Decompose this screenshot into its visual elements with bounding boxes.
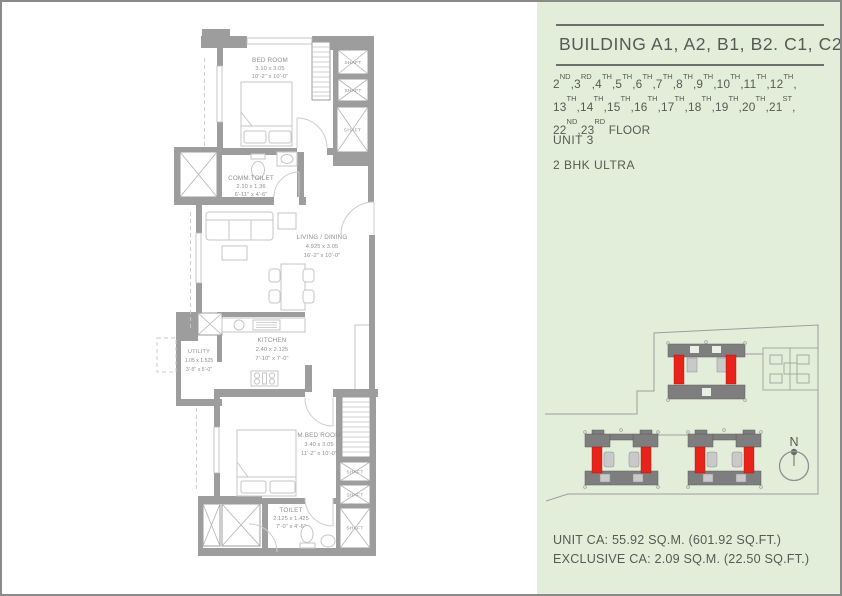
toilet-imperial: 7'-0" x 4'-6" [276, 524, 306, 530]
stove [251, 371, 278, 386]
building-outline [763, 348, 818, 390]
living-metric: 4.925 x 3.05 [306, 244, 339, 250]
building-title: BUILDING A1, A2, B1, B2. C1, C2 [559, 34, 821, 55]
unit-number: UNIT 3 [553, 133, 594, 147]
coffee-table [222, 246, 247, 260]
brochure-page: BED ROOM 3.10 x 3.05 10'-2" x 10'-0" COM… [0, 0, 842, 596]
utility-metric: 1.05 x 1.525 [185, 358, 214, 364]
bedroom-imperial: 10'-2" x 10'-0" [252, 74, 288, 80]
bedroom-bed [241, 82, 292, 146]
kitchen-label: KITCHEN [257, 337, 286, 344]
master-bedroom-imperial: 11'-2" x 10'-0" [301, 451, 337, 457]
master-bed [237, 430, 296, 496]
shaft-label-5: SHAFT [346, 493, 363, 499]
area-statement: UNIT CA: 55.92 SQ.M. (601.92 SQ.FT.) EXC… [553, 531, 809, 568]
building-cluster-bottom-2 [687, 429, 763, 489]
living-label: LIVING / DINING [297, 234, 348, 241]
shaft-label-6: SHAFT [346, 526, 363, 532]
master-bedroom-metric: 3.40 x 3.05 [304, 442, 333, 448]
unit-type: 2 BHK ULTRA [553, 158, 635, 172]
living-imperial: 16'-2" x 10'-0" [304, 253, 340, 259]
key-plan: N [537, 297, 840, 512]
utility-label: UTILITY [188, 349, 210, 355]
exclusive-ca: EXCLUSIVE CA: 2.09 SQ.M. (22.50 SQ.FT.) [553, 550, 809, 569]
sofa [206, 212, 273, 240]
kitchen-counter [222, 318, 369, 389]
floor-list: 2ND,3RD,4TH,5TH,6TH,7TH,8TH,9TH,10TH,11T… [553, 71, 797, 140]
bedroom-metric: 3.10 x 3.05 [255, 66, 284, 72]
title-block: BUILDING A1, A2, B1, B2. C1, C2 [556, 24, 824, 66]
kitchen-imperial: 7'-10" x 7'-0" [255, 356, 288, 362]
kitchen-metric: 2.40 x 2.125 [256, 347, 289, 353]
unit-ca: UNIT CA: 55.92 SQ.M. (601.92 SQ.FT.) [553, 531, 809, 550]
toilet-metric: 2.125 x 1.425 [273, 516, 309, 522]
building-cluster-top [667, 341, 747, 402]
shaft-label-2: SHAFT [344, 88, 361, 94]
utility-imperial: 3'-5" x 5'-0" [186, 367, 212, 373]
comm-toilet-imperial: 6'-11" x 4'-6" [235, 192, 268, 198]
bedroom-label: BED ROOM [252, 57, 288, 64]
shaft-label-3: SHAFT [344, 128, 361, 134]
floor-plan: BED ROOM 3.10 x 3.05 10'-2" x 10'-0" COM… [2, 2, 537, 594]
shaft-label-1: SHAFT [344, 60, 361, 66]
building-cluster-bottom [584, 429, 660, 489]
north-indicator: N [780, 435, 809, 481]
master-bedroom-label: M.BED ROOM [297, 432, 340, 439]
toilet-label: TOILET [279, 507, 302, 514]
side-table [278, 213, 296, 229]
comm-toilet-label: COMM.TOILET [228, 175, 274, 182]
info-panel: BUILDING A1, A2, B1, B2. C1, C2 2ND,3RD,… [537, 2, 840, 594]
north-label: N [789, 435, 798, 449]
comm-toilet-metric: 2.10 x 1.36 [236, 184, 265, 190]
shaft-label-4: SHAFT [346, 470, 363, 476]
dining-set [269, 264, 314, 310]
